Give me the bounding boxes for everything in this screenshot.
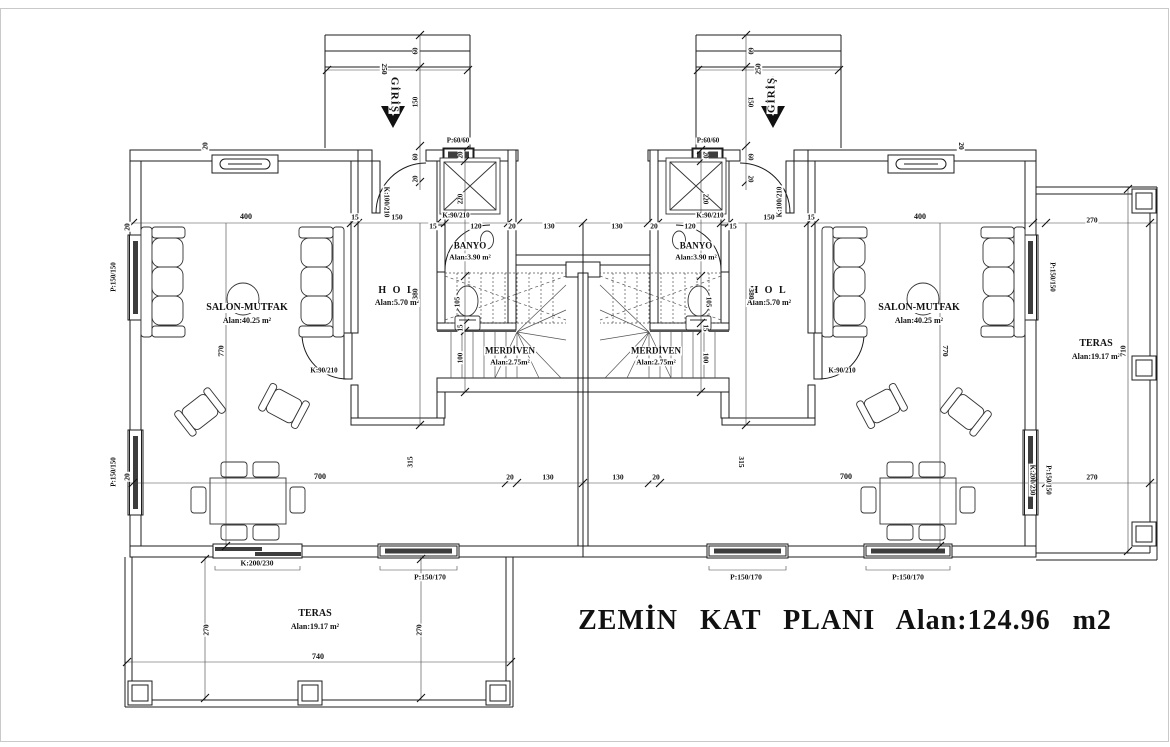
window-code-left-wall-top: P:150/150 — [111, 261, 118, 293]
dim-100-stair-right: 100 — [702, 352, 709, 365]
window-code-left-wall-bottom: P:150/150 — [111, 456, 118, 488]
dim-270-teras-bottom-left: 270 — [202, 623, 210, 636]
door-code-teras-bottom: K:200/230 — [240, 559, 275, 567]
dim-700-bottom-left: 700 — [313, 473, 327, 481]
dim-130-left: 130 — [542, 222, 555, 230]
dim-380-hol-left: 380 — [411, 287, 419, 300]
door-code-entrance-right: K:100/210 — [777, 186, 784, 219]
entrance-label-left: GİRİŞ — [389, 76, 400, 114]
dim-315-right: 315 — [737, 455, 745, 468]
dim-770-salon-right: 770 — [941, 344, 949, 357]
floor-plan-page: SALON-MUTFAKAlan:40.25 m²H O LAlan:5.70 … — [0, 0, 1170, 747]
window-code-right-wall-bottom: P:150/150 — [1045, 464, 1052, 496]
room-area-teras-right: Alan:19.17 m² — [1071, 353, 1121, 361]
dim-710-teras-right: 710 — [1119, 344, 1127, 357]
dim-15-right-a: 15 — [806, 213, 816, 221]
room-label-teras-right: TERAS — [1078, 339, 1113, 349]
window-code-bottom-right-1: P:150/170 — [729, 573, 763, 581]
dim-15-right-b: 15 — [728, 222, 738, 230]
dim-150-porch-left: 150 — [413, 96, 420, 109]
room-area-teras-bottom: Alan:19.17 m² — [290, 623, 340, 631]
dim-270-teras-right-bottom: 270 — [1085, 473, 1098, 481]
dim-220-banyo-left: 220 — [458, 193, 465, 206]
dim-105-wc-left: 105 — [455, 296, 462, 309]
room-label-banyo-left: BANYO — [453, 242, 488, 251]
dim-400-right: 400 — [913, 213, 927, 221]
room-label-salon-right: SALON-MUTFAK — [877, 303, 960, 313]
room-area-merdiven-right: Alan:2.75m² — [635, 358, 677, 366]
labels-layer: SALON-MUTFAKAlan:40.25 m²H O LAlan:5.70 … — [0, 0, 1170, 747]
dim-150-left: 150 — [390, 213, 403, 221]
dim-400-left: 400 — [239, 213, 253, 221]
room-area-merdiven-left: Alan:2.75m² — [489, 358, 531, 366]
dim-15-left-a: 15 — [350, 213, 360, 221]
dim-20-leftwall-top: 20 — [123, 222, 131, 232]
dim-60-porch-right-a: 60 — [747, 47, 754, 56]
dim-15-banyo-right: 15 — [702, 324, 709, 333]
dim-380-hol-right: 380 — [747, 287, 755, 300]
door-code-teras-right: K:200/230 — [1029, 464, 1036, 497]
dim-120-left: 120 — [469, 222, 482, 230]
dim-250-porch-left: 250 — [380, 62, 388, 75]
dim-20-porch-left: 20 — [413, 175, 420, 184]
door-code-banyo-left: K:90/210 — [441, 213, 470, 220]
dim-20-banyo-right: 20 — [702, 151, 709, 160]
dim-20-left-a: 20 — [507, 222, 517, 230]
dim-270-teras-bottom-right: 270 — [415, 623, 423, 636]
room-label-banyo-right: BANYO — [679, 242, 714, 251]
dim-60-porch-left-a: 60 — [413, 47, 420, 56]
dim-15-left-b: 15 — [428, 222, 438, 230]
dim-700-bottom-right: 700 — [839, 473, 853, 481]
dim-315-left: 315 — [406, 455, 414, 468]
dim-100-stair-left: 100 — [458, 352, 465, 365]
dim-60-porch-left-b: 60 — [413, 153, 420, 162]
room-label-merdiven-left: MERDİVEN — [484, 347, 536, 356]
dim-20-banyo-left: 20 — [458, 151, 465, 160]
door-code-entrance-left: K:100/210 — [383, 186, 390, 219]
dim-130-right: 130 — [610, 222, 623, 230]
dim-20-porch-right: 20 — [747, 175, 754, 184]
door-code-salon-left: K:90/210 — [309, 368, 338, 375]
room-area-banyo-right: Alan:3.90 m² — [674, 253, 717, 261]
door-code-banyo-right: K:90/210 — [695, 213, 724, 220]
dim-250-porch-right: 250 — [754, 62, 762, 75]
dim-740-teras-bottom: 740 — [311, 653, 325, 661]
plan-title: ZEMİN KAT PLANI Alan:124.96 m2 — [577, 607, 1113, 635]
window-code-bottom-right-2: P:150/170 — [891, 573, 925, 581]
window-code-right-wall-top: P:150/150 — [1049, 261, 1056, 293]
dim-220-banyo-right: 220 — [702, 193, 709, 206]
dim-120-right: 120 — [683, 222, 696, 230]
room-area-salon-right: Alan:40.25 m² — [894, 317, 944, 325]
window-code-banyo-left: P:60/60 — [446, 138, 471, 145]
dim-130-bottom-right: 130 — [611, 473, 624, 481]
dim-20-topwall-left: 20 — [201, 141, 209, 151]
dim-150-porch-right: 150 — [747, 96, 754, 109]
door-code-salon-right: K:90/210 — [827, 368, 856, 375]
room-label-merdiven-right: MERDİVEN — [630, 347, 682, 356]
dim-15-banyo-left: 15 — [458, 324, 465, 333]
dim-770-salon-left: 770 — [217, 344, 225, 357]
window-code-bottom-left: P:150/170 — [413, 573, 447, 581]
dim-130-bottom-left: 130 — [541, 473, 554, 481]
dim-20-right-a: 20 — [649, 222, 659, 230]
dim-270-teras-right-top: 270 — [1085, 216, 1098, 224]
dim-20-bottom-left: 20 — [505, 473, 515, 481]
dim-105-wc-right: 105 — [705, 296, 712, 309]
dim-20-topwall-right: 20 — [957, 141, 965, 151]
window-code-banyo-right: P:60/60 — [696, 138, 721, 145]
room-area-salon-left: Alan:40.25 m² — [222, 317, 272, 325]
dim-60-porch-right-b: 60 — [747, 153, 754, 162]
dim-20-leftwall-bottom: 20 — [123, 472, 131, 482]
room-label-salon-left: SALON-MUTFAK — [205, 303, 288, 313]
dim-20-bottom-right: 20 — [651, 473, 661, 481]
entrance-label-right: GİRİŞ — [767, 76, 778, 114]
room-label-teras-bottom: TERAS — [297, 609, 332, 619]
dim-150-right: 150 — [762, 213, 775, 221]
room-area-banyo-left: Alan:3.90 m² — [448, 253, 491, 261]
